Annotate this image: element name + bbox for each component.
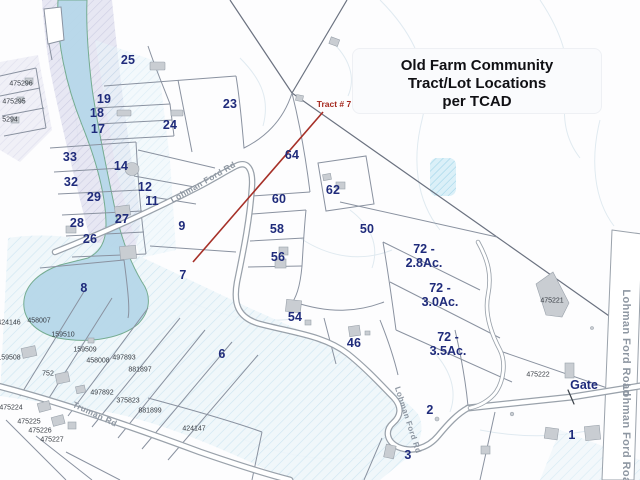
map-title-line3: per TCAD bbox=[353, 93, 601, 111]
map-title-line2: Tract/Lot Locations bbox=[353, 75, 601, 93]
tract-7-annotation: Tract # 7 bbox=[317, 99, 352, 109]
map-title-box: Old Farm Community Tract/Lot Locations p… bbox=[352, 48, 602, 114]
small-pond bbox=[430, 158, 456, 196]
lohman-ford-road-right bbox=[602, 230, 640, 480]
tcad-map-screenshot: 2523241918173332141229112827269786462605… bbox=[0, 0, 640, 480]
gate-label: Gate bbox=[570, 378, 598, 392]
map-title-line1: Old Farm Community bbox=[353, 57, 601, 75]
